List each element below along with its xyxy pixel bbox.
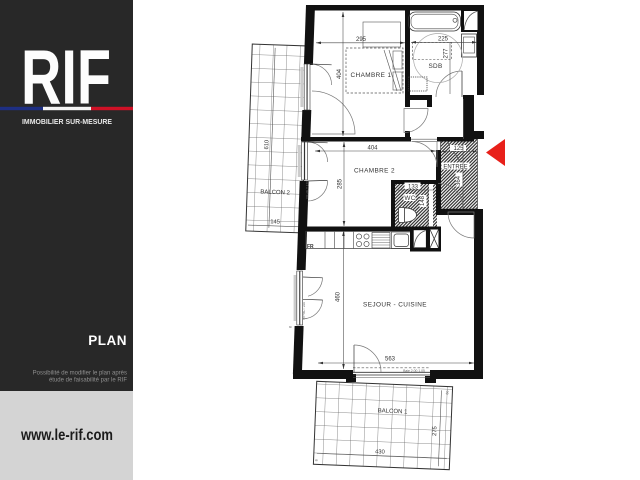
svg-text:145: 145 xyxy=(270,219,280,225)
svg-text:460: 460 xyxy=(336,291,342,302)
svg-text:404: 404 xyxy=(337,68,343,79)
svg-text:IMMOBILIER SUR-MESURE: IMMOBILIER SUR-MESURE xyxy=(22,117,112,126)
svg-text:125: 125 xyxy=(453,146,464,152)
svg-text:BALCON 2: BALCON 2 xyxy=(260,189,291,196)
svg-text:SDB: SDB xyxy=(428,63,442,70)
svg-text:étude de faisabilité par le RI: étude de faisabilité par le RIF xyxy=(49,378,127,384)
svg-text:275: 275 xyxy=(432,426,438,436)
svg-text:295: 295 xyxy=(356,37,367,43)
svg-text:8: 8 xyxy=(289,326,293,328)
svg-text:364: 364 xyxy=(456,175,462,186)
svg-text:610: 610 xyxy=(264,140,270,150)
svg-text:VR+BLT 120: VR+BLT 120 xyxy=(306,181,310,199)
svg-text:8: 8 xyxy=(315,459,319,461)
svg-text:430: 430 xyxy=(375,449,385,455)
svg-text:563: 563 xyxy=(385,357,396,363)
svg-text:148: 148 xyxy=(420,195,426,206)
svg-text:404: 404 xyxy=(367,146,378,152)
svg-text:VR+BLT 220: VR+BLT 220 xyxy=(302,302,306,320)
svg-text:SEJOUR - CUISINE: SEJOUR - CUISINE xyxy=(363,302,427,309)
svg-text:Baie 2.00 1.05: Baie 2.00 1.05 xyxy=(403,369,425,373)
svg-text:285: 285 xyxy=(338,178,344,189)
svg-text:BALCON 1: BALCON 1 xyxy=(378,408,409,415)
svg-text:PLAN: PLAN xyxy=(88,333,127,348)
svg-text:www.le-rif.com: www.le-rif.com xyxy=(20,427,113,444)
svg-text:ENTREE: ENTREE xyxy=(443,165,467,171)
svg-text:Possibilité de modifier le pla: Possibilité de modifier le plan après xyxy=(33,371,127,377)
svg-text:CHAMBRE 2: CHAMBRE 2 xyxy=(354,168,395,175)
svg-text:133: 133 xyxy=(408,185,419,191)
svg-text:FR: FR xyxy=(307,244,314,250)
svg-text:CHAMBRE 1: CHAMBRE 1 xyxy=(351,72,392,79)
svg-text:60: 60 xyxy=(445,391,449,395)
svg-text:WC: WC xyxy=(404,195,415,202)
svg-text:225: 225 xyxy=(438,37,449,43)
svg-text:277: 277 xyxy=(444,48,450,59)
